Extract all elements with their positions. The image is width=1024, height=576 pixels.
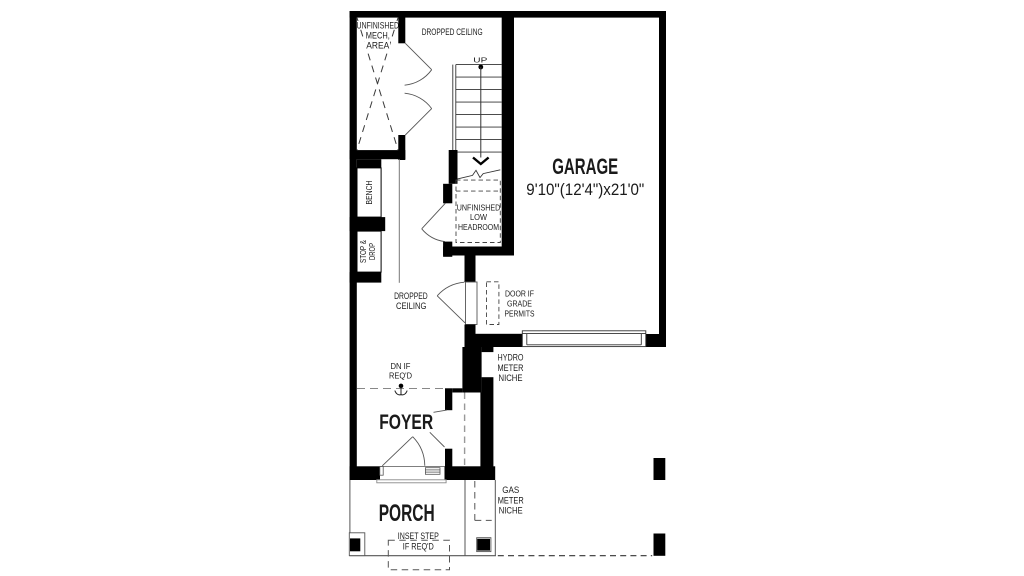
svg-text:LOW: LOW [470, 212, 487, 222]
svg-text:FOYER: FOYER [379, 410, 433, 434]
svg-text:BENCH: BENCH [364, 181, 374, 205]
svg-text:DROPPED CEILING: DROPPED CEILING [422, 26, 483, 37]
svg-text:HYDRO: HYDRO [498, 353, 524, 363]
svg-text:UNFINISHED: UNFINISHED [457, 203, 501, 213]
svg-text:IF REQ'D: IF REQ'D [403, 541, 434, 551]
svg-text:REQ'D: REQ'D [389, 372, 412, 381]
svg-text:PERMITS: PERMITS [505, 309, 535, 319]
svg-text:CEILING: CEILING [396, 301, 427, 311]
svg-text:DROPPED: DROPPED [394, 291, 428, 301]
svg-text:PORCH: PORCH [379, 500, 435, 527]
svg-text:MECH,: MECH, [366, 30, 390, 40]
svg-text:DROP: DROP [368, 243, 377, 260]
svg-text:HEADROOM: HEADROOM [458, 222, 499, 232]
svg-text:METER: METER [498, 495, 524, 505]
svg-text:UP: UP [473, 55, 487, 64]
svg-text:METER: METER [498, 363, 524, 373]
svg-text:GRADE: GRADE [507, 299, 532, 309]
svg-text:GAS: GAS [502, 485, 519, 495]
svg-text:NICHE: NICHE [499, 373, 523, 383]
svg-text:DN IF: DN IF [391, 362, 411, 371]
svg-text:UNFINISHED: UNFINISHED [357, 21, 400, 31]
svg-text:AREA: AREA [366, 41, 389, 51]
svg-text:9'10"(12'4")x21'0": 9'10"(12'4")x21'0" [526, 181, 644, 199]
svg-text:GARAGE: GARAGE [552, 154, 618, 179]
svg-text:INSET STEP: INSET STEP [398, 531, 439, 541]
svg-text:NICHE: NICHE [499, 506, 523, 516]
svg-text:DOOR IF: DOOR IF [505, 288, 534, 298]
